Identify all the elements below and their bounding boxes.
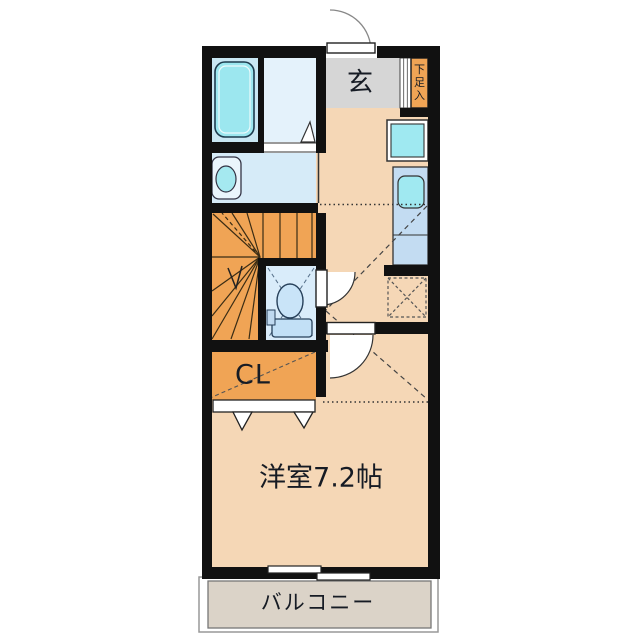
washbasin [212,157,241,199]
floor-plan: 玄 下足入 CL 洋室7.2帖 バルコニー [0,0,640,640]
floorplan-graphics [0,0,640,640]
bathtub [215,62,254,137]
western-room-label: 洋室7.2帖 [259,465,383,492]
kitchen-sink [398,176,424,208]
bathroom-divider-wall [258,58,264,142]
shoe-storage-label: 下足入 [414,64,425,103]
entrance-label: 玄 [347,70,373,96]
washing-machine-pan [387,120,428,161]
shoe-cabinet-door [400,58,411,108]
kitchen-counter [393,167,428,265]
balcony-label: バルコニー [261,593,376,614]
closet-label: CL [235,362,271,389]
